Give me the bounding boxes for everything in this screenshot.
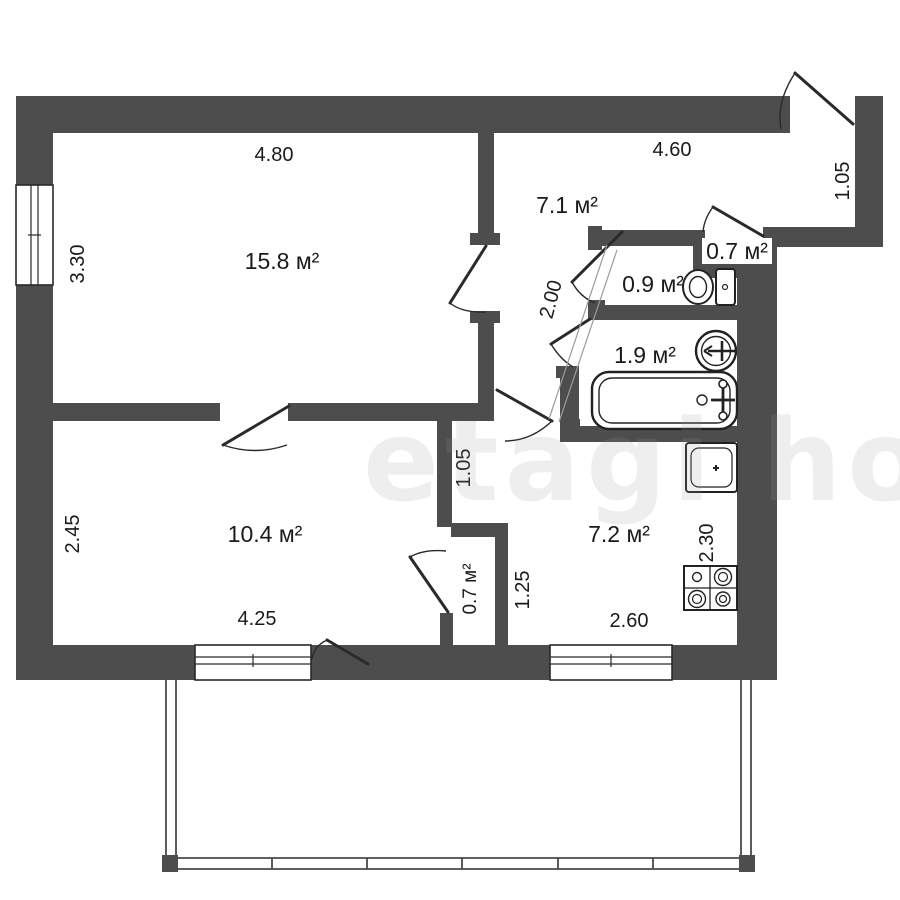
floor-plan-canvas: 4.80 3.30 4.60 1.05 2.00 2.45 4.25 1.05 … xyxy=(0,0,900,900)
wall-corridor-left-stub xyxy=(440,613,453,645)
door-closet-bottom xyxy=(410,551,448,612)
stove-4-burner-icon xyxy=(684,566,737,610)
dim-hall-width: 4.60 xyxy=(653,139,692,161)
wall-living-bedroom-left xyxy=(53,403,220,421)
wall-vestibule-right xyxy=(855,96,883,247)
wall-living-hall-lower xyxy=(478,311,494,410)
dim-bedroom-width: 4.25 xyxy=(238,608,277,630)
dim-closet-height: 1.25 xyxy=(512,571,534,610)
round-sink-icon xyxy=(696,331,737,371)
wall-top xyxy=(16,96,790,133)
window-kitchen xyxy=(550,645,672,680)
dim-living-height: 3.30 xyxy=(67,245,89,284)
wall-vestibule-bottom xyxy=(763,227,883,247)
dim-hall-corridor: 2.00 xyxy=(536,278,567,321)
dim-bedroom-height: 2.45 xyxy=(62,515,84,554)
door-entrance xyxy=(780,73,853,129)
label-bath-area: 1.9 м² xyxy=(614,342,676,368)
outer-walls xyxy=(16,96,883,680)
label-closet-bottom-area: 0.7 м² xyxy=(460,563,481,614)
wall-living-hall-upper xyxy=(478,133,494,245)
dim-vestibule-width: 1.05 xyxy=(832,162,854,201)
floor-plan-page: 4.80 3.30 4.60 1.05 2.00 2.45 4.25 1.05 … xyxy=(0,0,900,900)
wall-left xyxy=(16,96,53,680)
wall-cap xyxy=(470,233,500,245)
label-wc-area: 0.9 м² xyxy=(622,271,684,297)
door-bedroom xyxy=(223,406,289,451)
watermark-text: etagi house xyxy=(363,397,900,527)
label-hall-area: 7.1 м² xyxy=(536,192,598,218)
window-living xyxy=(16,185,53,285)
door-living xyxy=(450,246,486,312)
dim-kitchen-height: 2.30 xyxy=(696,524,718,563)
door-bath xyxy=(551,319,590,367)
balcony-post-left xyxy=(162,855,178,872)
dim-living-width: 4.80 xyxy=(255,144,294,166)
label-closet-top-area: 0.7 м² xyxy=(706,238,768,264)
toilet-icon xyxy=(683,269,735,305)
label-living-area: 15.8 м² xyxy=(245,248,320,274)
label-bedroom-area: 10.4 м² xyxy=(228,521,303,547)
wall-wc-bath-divider xyxy=(588,305,737,320)
balcony-post-right xyxy=(739,855,755,872)
wall-cap xyxy=(470,311,500,323)
wall-wc-top xyxy=(588,230,703,246)
dim-kitchen-width: 2.60 xyxy=(610,610,649,632)
balcony xyxy=(162,680,755,872)
window-bedroom xyxy=(195,645,311,680)
door-closet-top xyxy=(703,207,763,236)
wall-kitchen-left xyxy=(495,523,508,645)
